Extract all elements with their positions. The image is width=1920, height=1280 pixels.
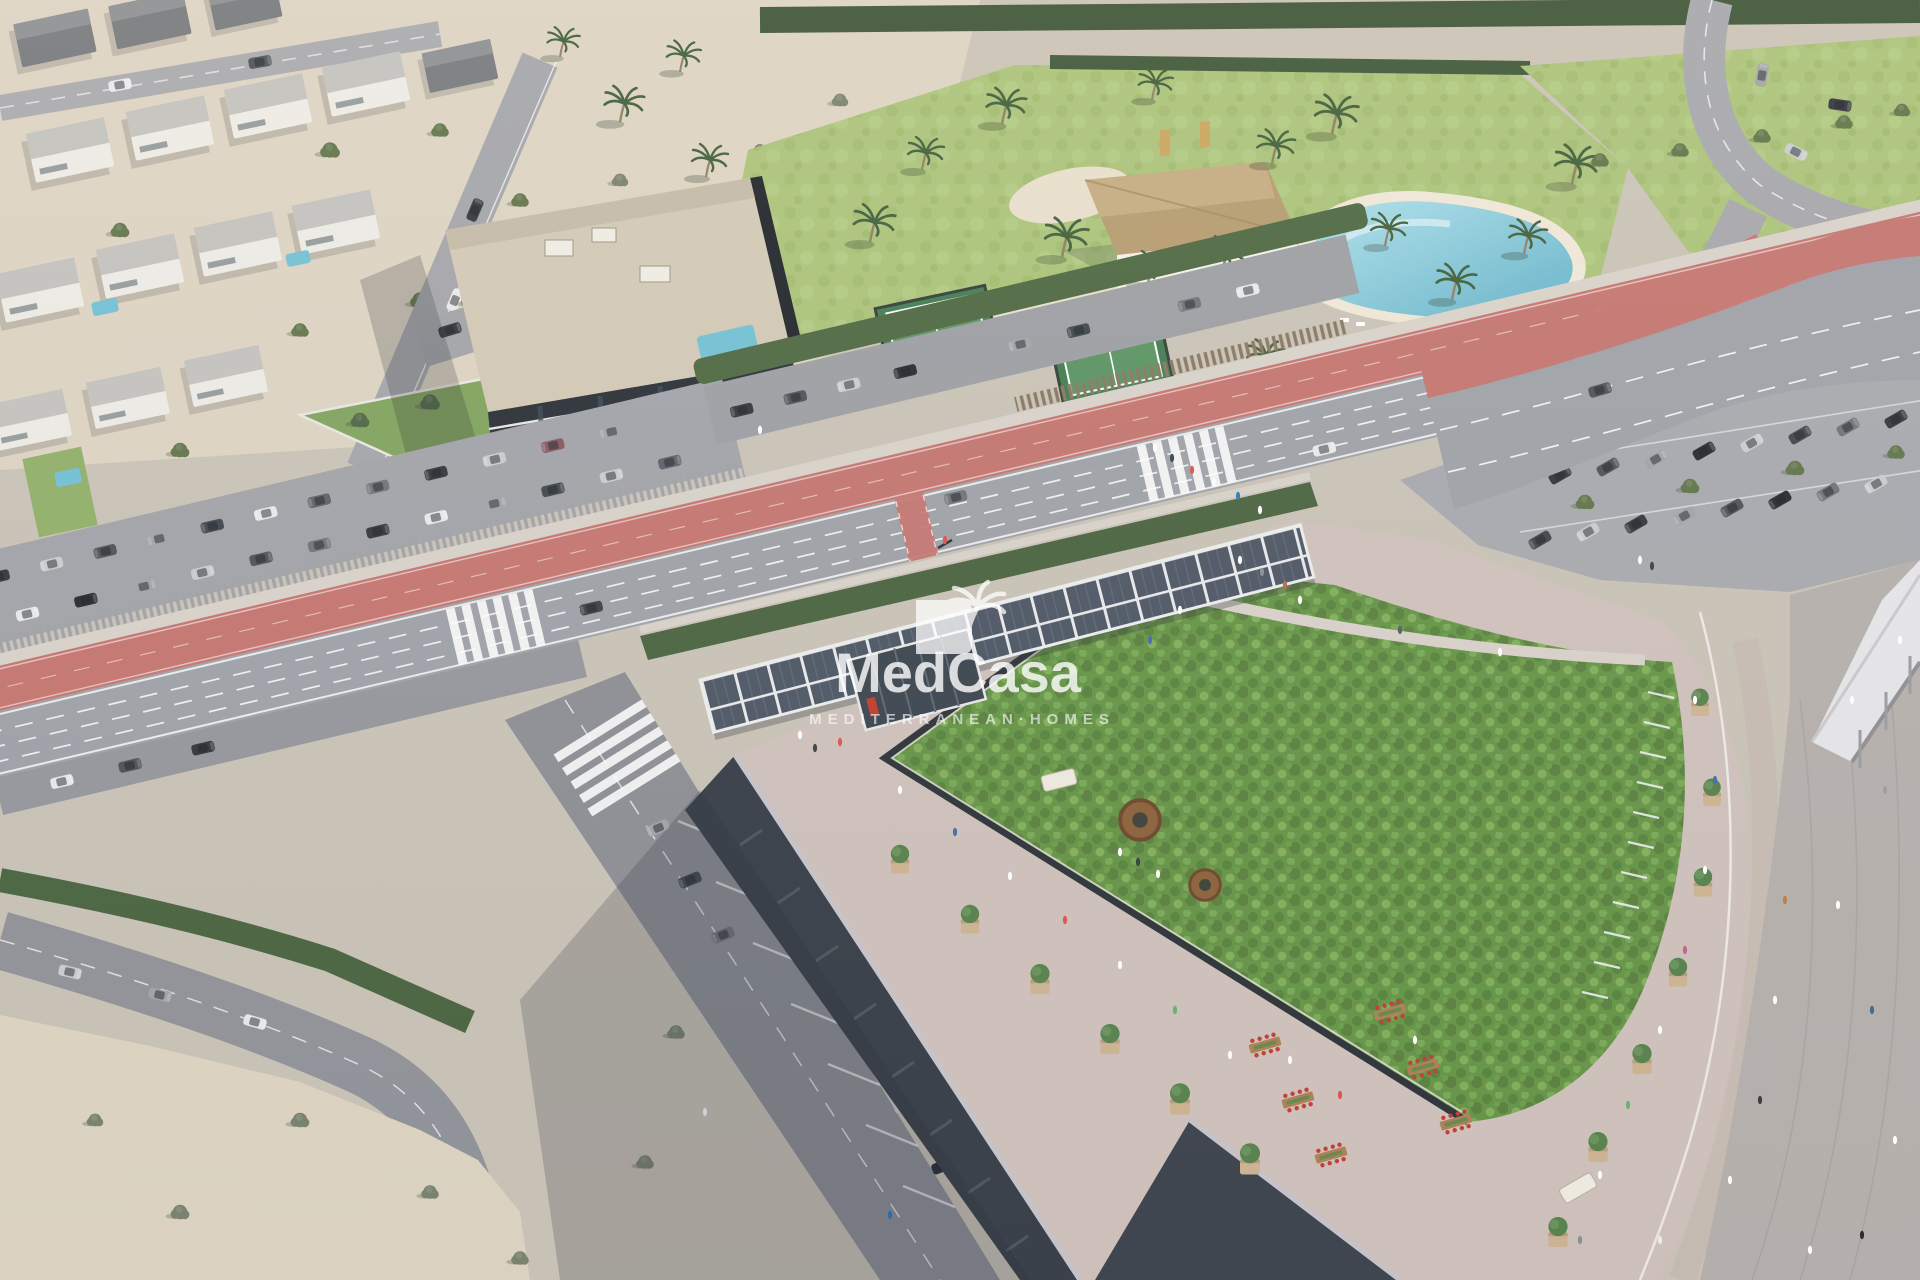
brand-tagline: MEDITERRANEAN·HOMES bbox=[809, 711, 1115, 728]
aerial-render-scene: MedCasa MEDITERRANEAN·HOMES bbox=[0, 0, 1920, 1280]
brand-name: MedCasa bbox=[835, 641, 1082, 704]
scene-canvas: MedCasa MEDITERRANEAN·HOMES bbox=[0, 0, 1920, 1280]
